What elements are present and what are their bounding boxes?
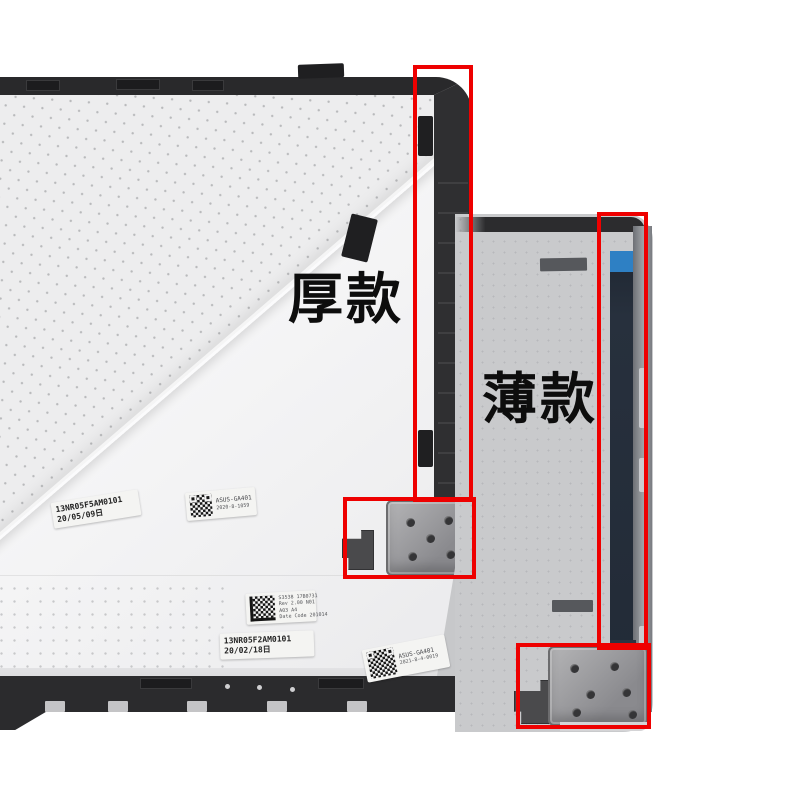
- rail-tab: [108, 701, 128, 712]
- rail-tab: [45, 701, 65, 712]
- bottom-part-number-sticker: 13NR05F2AM0101 20/02/18日: [220, 630, 315, 659]
- qr-code-icon: [366, 647, 398, 679]
- highlight-box-thin-hinge: [516, 643, 651, 729]
- date-text: 20/02/18日: [224, 644, 292, 656]
- product-photo-canvas: 13NR05F5AM0101 20/05/09日 ASUS-GA401 2020…: [0, 0, 800, 800]
- rail-screw: [257, 685, 262, 690]
- rail-tab: [187, 701, 207, 712]
- rail-bracket: [140, 678, 192, 689]
- thick-bottom-rail: [0, 676, 468, 712]
- thin-version-label: 薄款: [482, 372, 598, 427]
- datamatrix-icon: [249, 595, 275, 621]
- rail-tab: [347, 701, 367, 712]
- rail-bracket: [318, 678, 364, 689]
- foam-pad: [540, 258, 587, 272]
- thick-version-label: 厚款: [288, 272, 404, 327]
- qr-code-icon: [189, 494, 213, 518]
- rail-screw: [290, 687, 295, 692]
- foam-pad: [552, 600, 593, 612]
- top-rail-bracket: [116, 79, 160, 90]
- datecode-sticker: S3538 17B0731 Rev 2.00 N01 A03 A4 Date C…: [245, 590, 317, 625]
- top-foam-pad: [298, 63, 344, 79]
- highlight-box-thin-edge: [597, 212, 648, 650]
- rail-tab: [267, 701, 287, 712]
- top-rail-bracket: [192, 80, 224, 91]
- thick-cover-photo: [0, 77, 472, 713]
- top-rail-bracket: [26, 80, 60, 91]
- rail-screw: [225, 684, 230, 689]
- thick-bottom-rail-end: [0, 676, 50, 730]
- highlight-box-thick-hinge: [343, 497, 476, 579]
- highlight-box-thick-edge: [413, 65, 473, 502]
